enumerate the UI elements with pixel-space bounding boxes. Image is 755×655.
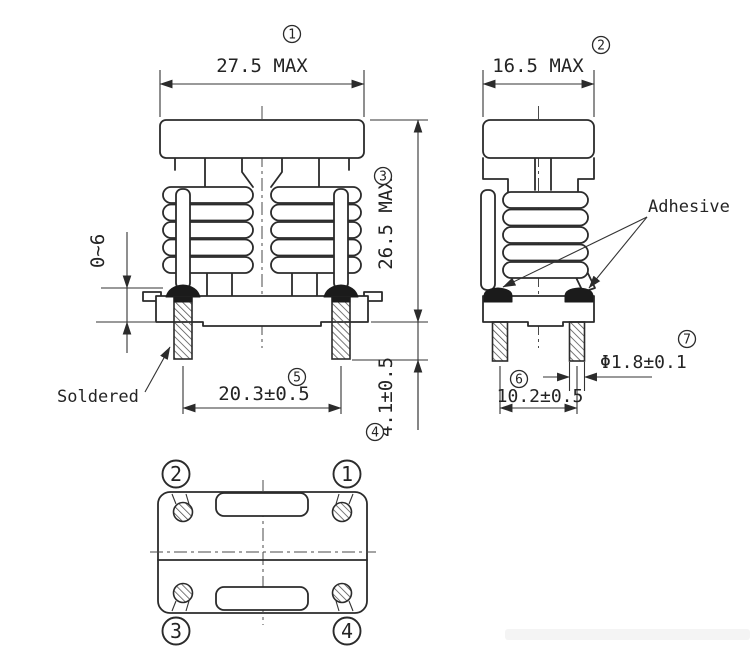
front-top-flange xyxy=(160,120,364,158)
bottom-pin-3 xyxy=(174,584,193,603)
dim-pin-pitch-front: 20.3±0.5 5 xyxy=(183,366,341,414)
dim-index-4: 4 xyxy=(371,426,379,441)
dim-index-2: 2 xyxy=(597,39,605,54)
side-left-adhesive-blob xyxy=(484,288,512,302)
bottom-pin-2 xyxy=(174,503,193,522)
dim-width-side: 16.5 MAX 2 xyxy=(483,37,610,118)
dim-pin-diameter: Φ1.8±0.1 7 xyxy=(543,331,696,392)
dim-height-text: 26.5 MAX xyxy=(375,178,397,270)
soldered-callout: Soldered xyxy=(57,347,170,407)
bottom-bottom-slot xyxy=(216,587,308,610)
front-left-pin xyxy=(174,297,192,359)
side-top-flange xyxy=(483,120,594,158)
dim-pin-length: 4.1±0.5 4 xyxy=(352,322,428,441)
pin-number-4: 4 xyxy=(341,619,353,643)
soldered-leader-arrow xyxy=(145,347,170,392)
dim-pin-pitch-front-text: 20.3±0.5 xyxy=(218,383,310,405)
dim-index-3: 3 xyxy=(379,170,387,185)
dim-index-7: 7 xyxy=(683,333,691,348)
front-left-solder-fillet xyxy=(166,285,200,297)
dim-index-1: 1 xyxy=(288,28,296,43)
front-right-solder-fillet xyxy=(324,285,358,297)
bottom-top-slot xyxy=(216,493,308,516)
front-left-pin-solder-cap xyxy=(174,297,192,302)
side-right-adhesive-blob xyxy=(565,288,593,302)
pin-number-3: 3 xyxy=(170,619,182,643)
soldered-label: Soldered xyxy=(57,387,139,407)
side-left-lead-wire xyxy=(481,190,495,290)
side-right-pin xyxy=(570,322,585,361)
adhesive-leader-arrow-right xyxy=(589,217,647,288)
bottom-pin-4 xyxy=(333,584,352,603)
front-left-coil xyxy=(163,187,253,289)
dim-width-front: 27.5 MAX 1 xyxy=(160,26,364,118)
scan-smudge xyxy=(505,629,750,640)
technical-drawing-canvas: 2 1 3 4 27.5 MAX 1 26.5 MAX 3 xyxy=(0,0,755,655)
pin-number-2: 2 xyxy=(170,462,182,486)
bottom-view: 2 1 3 4 xyxy=(150,461,376,645)
dim-width-front-text: 27.5 MAX xyxy=(216,55,308,77)
adhesive-label: Adhesive xyxy=(648,197,730,217)
dim-pin-diameter-text: Φ1.8±0.1 xyxy=(600,352,687,373)
dim-pin-pitch-side: 10.2±0.5 6 xyxy=(497,366,584,414)
dim-standoff-text: 0~6 xyxy=(87,234,109,268)
bottom-pin-1 xyxy=(333,503,352,522)
side-view xyxy=(481,106,595,361)
front-right-pin-solder-cap xyxy=(332,297,350,302)
dim-pin-pitch-side-text: 10.2±0.5 xyxy=(497,386,584,407)
front-view xyxy=(143,106,382,359)
dim-width-side-text: 16.5 MAX xyxy=(492,55,584,77)
front-right-lead-wire xyxy=(334,189,348,289)
front-right-pin xyxy=(332,297,350,359)
pin-number-1: 1 xyxy=(341,462,353,486)
dim-index-5: 5 xyxy=(293,371,301,386)
dim-index-6: 6 xyxy=(515,373,523,388)
side-coil xyxy=(481,190,588,290)
front-left-lead-wire xyxy=(176,189,190,289)
side-left-pin xyxy=(493,322,508,361)
front-right-coil xyxy=(271,187,361,289)
choke-dimension-drawing: 2 1 3 4 27.5 MAX 1 26.5 MAX 3 xyxy=(0,0,755,655)
